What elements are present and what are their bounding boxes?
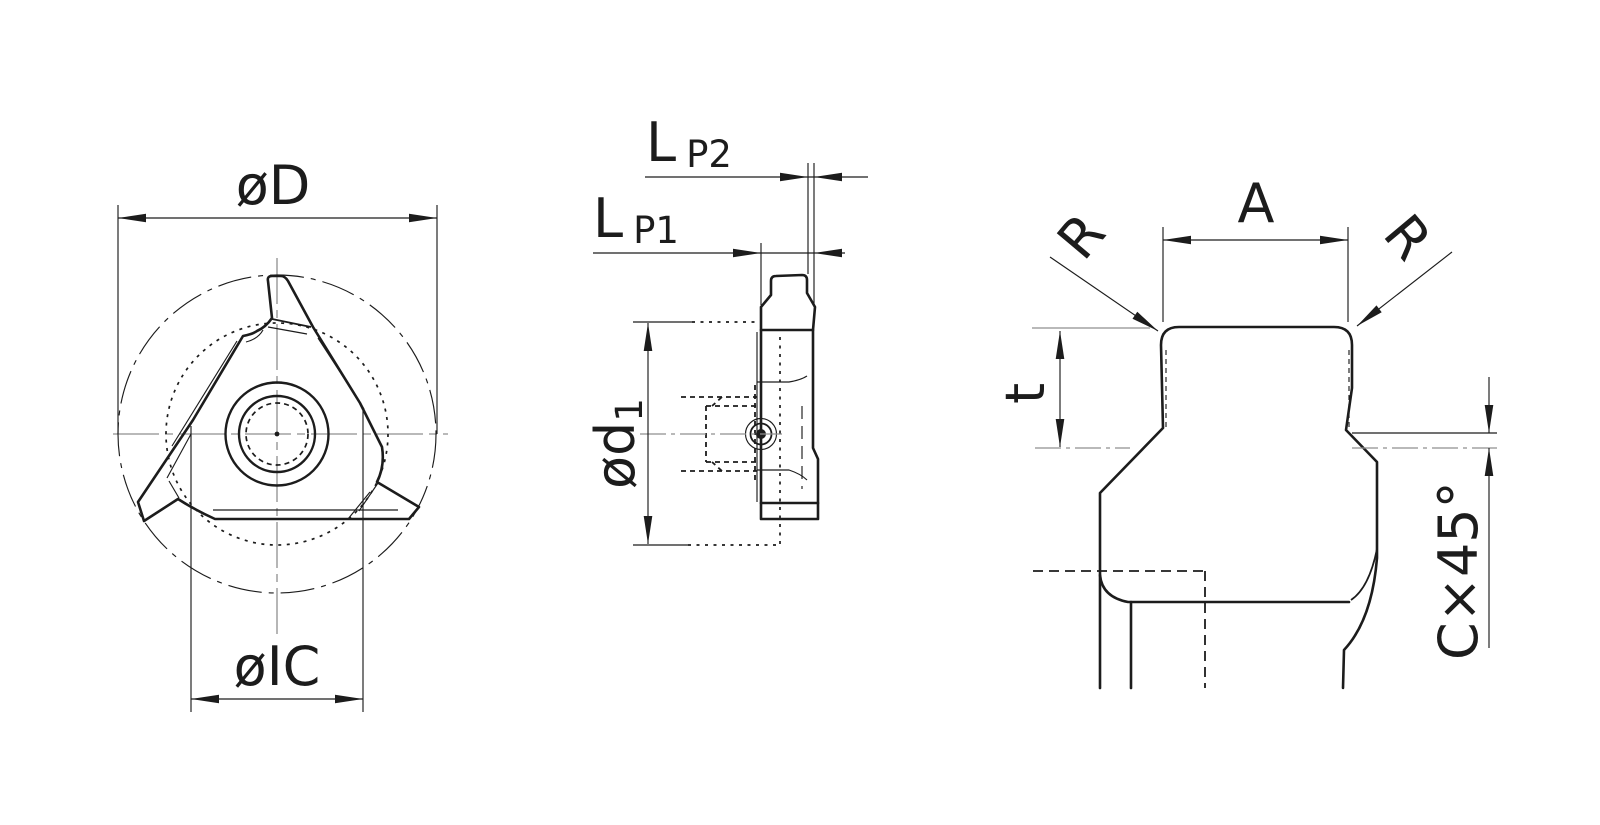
- dim-od-arrow-left: [118, 214, 146, 223]
- dim-t-arrow-top: [1056, 331, 1065, 359]
- side-relief-lower-edge: [757, 470, 807, 480]
- profile-outline: [1100, 327, 1377, 688]
- dim-d1-arrow-top: [644, 323, 653, 351]
- ground-margin-lines: [172, 330, 398, 510]
- dim-ic-arrow-left: [191, 695, 219, 704]
- profile-detail-view: A R R t: [994, 172, 1497, 688]
- left-tooth-flank-line-2: [169, 481, 179, 498]
- left-margin-line: [172, 341, 237, 446]
- dim-ic-label: øIC: [234, 635, 321, 698]
- tooth-face-edges: [167, 319, 378, 519]
- dim-od-arrow-right: [409, 214, 437, 223]
- dim-c-arrow-up: [1485, 448, 1494, 476]
- dim-d1-arrow-bottom: [644, 516, 653, 544]
- dim-corner-radius-left: R: [1045, 202, 1158, 331]
- profile-shoulder-fillet: [1100, 575, 1349, 602]
- dim-lp2-arrow-left: [780, 173, 808, 182]
- radius-right-arrow: [1357, 305, 1382, 326]
- front-view: øD øIC: [113, 154, 448, 712]
- technical-drawing-canvas: øD øIC: [0, 0, 1600, 825]
- dim-a-arrow-left: [1163, 236, 1191, 245]
- dim-a-arrow-right: [1320, 236, 1348, 245]
- radius-right-label: R: [1371, 203, 1443, 272]
- dim-od-label: øD: [236, 154, 311, 217]
- dim-t-arrow-bottom: [1056, 419, 1065, 447]
- dim-lp2-arrow-right: [814, 173, 842, 182]
- dim-c-arrow-down: [1485, 405, 1494, 433]
- dim-a-label: A: [1238, 172, 1275, 235]
- right-margin-line: [318, 338, 364, 409]
- hole-center-dot: [275, 432, 280, 437]
- dim-corner-radius-right: R: [1357, 203, 1452, 326]
- side-relief-upper-edge: [757, 376, 807, 382]
- dim-chamfer: C×45°: [1427, 377, 1493, 660]
- dim-ic-arrow-right: [335, 695, 363, 704]
- drawing-sheet: øD øIC: [0, 0, 1600, 825]
- dim-d1-label: ød1: [584, 398, 651, 489]
- dim-tip-width: A: [1163, 172, 1348, 322]
- right-tooth-flank-line-2: [348, 492, 370, 519]
- hole-hidden-cone-bottom: [712, 462, 722, 471]
- dim-t-label: t: [994, 383, 1057, 404]
- dim-lp2-label: LP2: [646, 111, 732, 176]
- dim-profile-depth: t: [994, 331, 1064, 447]
- side-view: LP2 LP1 ød1: [584, 111, 868, 545]
- hole-hidden-cone-top: [712, 397, 722, 406]
- side-body-outline: [761, 275, 818, 519]
- dim-length-p2: LP2: [645, 111, 868, 305]
- dim-lp1-label: LP1: [593, 187, 679, 252]
- top-tooth-base-line-2: [268, 327, 307, 334]
- dim-lp1-arrow-right: [814, 249, 842, 258]
- dim-chamfer-label: C×45°: [1427, 481, 1490, 660]
- right-tooth-flank-line: [359, 483, 378, 511]
- top-tooth-base-line: [272, 319, 311, 327]
- dim-lp1-arrow-left: [733, 249, 761, 258]
